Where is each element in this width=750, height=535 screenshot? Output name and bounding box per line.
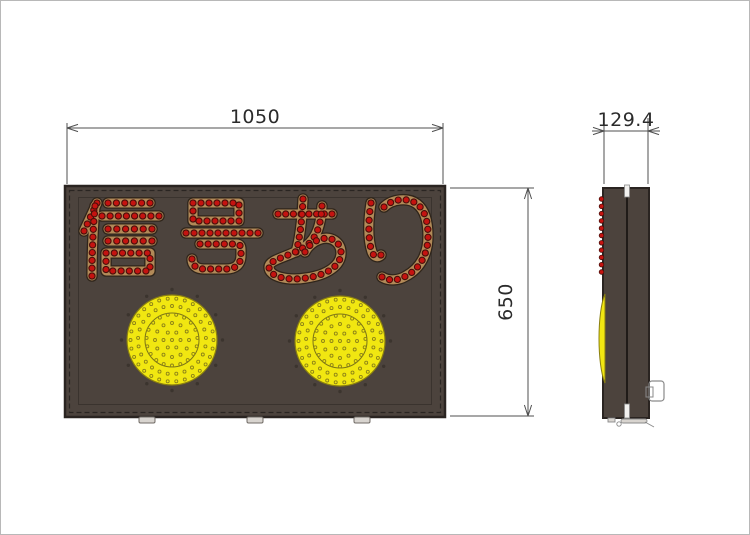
dimension-width: [67, 123, 443, 184]
technical-drawing-canvas: 1050 650 129.4: [0, 0, 750, 535]
side-lamp-bulge: [599, 294, 605, 383]
rear-bracket: [649, 381, 664, 401]
lamp-lens: [295, 296, 385, 386]
side-feet: [608, 418, 654, 427]
led-character-1: [81, 200, 162, 279]
height-dimension-label: 650: [495, 283, 517, 321]
drawing-shapes: [1, 1, 750, 535]
top-hinge-tab: [625, 185, 630, 197]
depth-dimension-label: 129.4: [598, 109, 655, 131]
foot: [247, 417, 263, 423]
dimension-height: [450, 188, 534, 416]
lamp-lens: [127, 295, 217, 385]
foot: [139, 417, 155, 423]
width-dimension-label: 1050: [230, 106, 280, 128]
side-led-bumps: [599, 197, 604, 275]
side-view: [599, 185, 664, 427]
led-sign-drawing: 1050 650 129.4: [0, 0, 750, 535]
bottom-hinge-tab: [625, 404, 630, 418]
foot: [354, 417, 370, 423]
